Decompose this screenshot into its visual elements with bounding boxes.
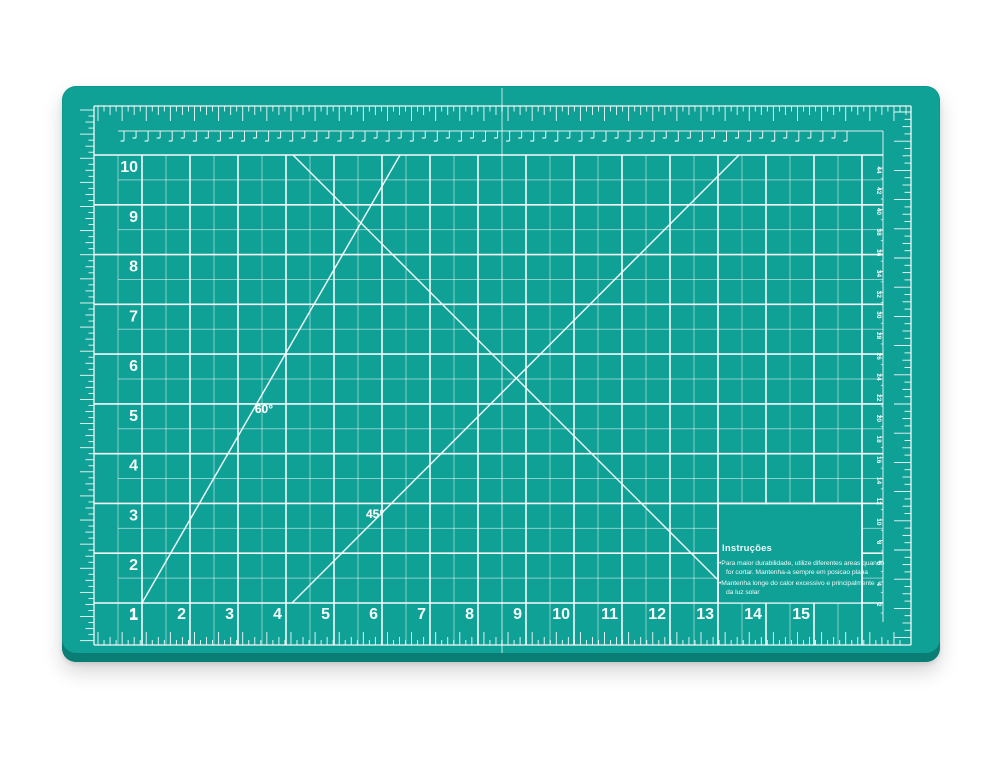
side-ruler-number: 16 <box>875 456 882 464</box>
side-ruler-number: 20 <box>875 415 882 423</box>
side-ruler-number: 18 <box>875 435 882 443</box>
side-ruler-number: 22 <box>875 394 882 402</box>
bottom-scale-number: 8 <box>465 606 474 623</box>
instructions-line: da luz solar <box>726 589 760 596</box>
side-ruler-number: 10 <box>875 518 882 526</box>
side-ruler-number: 24 <box>875 373 882 381</box>
bottom-scale-number: 11 <box>601 606 618 623</box>
left-scale-number: 10 <box>120 159 138 176</box>
side-ruler-number: 8 <box>875 541 882 545</box>
bottom-scale-number: 12 <box>648 606 666 623</box>
mat-markings: 4442403836343230282624222018161412108642… <box>0 0 1000 762</box>
side-ruler-number: 2 <box>875 603 882 607</box>
instructions-line: for cortar. Mantenha-a sempre em posicao… <box>726 569 868 576</box>
left-scale-number: 6 <box>129 358 138 375</box>
bottom-scale-number: 14 <box>744 606 762 623</box>
left-scale-number: 3 <box>129 507 138 524</box>
left-scale-number: 9 <box>129 209 138 226</box>
side-ruler-number: 36 <box>875 249 882 257</box>
bottom-scale-number: 4 <box>273 606 282 623</box>
side-ruler-number: 34 <box>875 270 882 278</box>
side-ruler-number: 40 <box>875 208 882 216</box>
left-scale-number: 4 <box>129 458 138 475</box>
side-ruler-number: 44 <box>875 166 882 174</box>
instructions-line: •Mantenha longe do calor excessivo e pri… <box>719 580 875 587</box>
bottom-scale-number: 7 <box>417 606 426 623</box>
bottom-scale-number: 2 <box>177 606 186 623</box>
angle-45-label: 45° <box>366 507 396 521</box>
angle-60-label: 60° <box>243 402 273 416</box>
diagonal-45deg-line <box>293 155 717 579</box>
bottom-scale-number: 10 <box>552 606 570 623</box>
instructions-title: Instruções <box>722 543 772 554</box>
bottom-scale-number: 15 <box>792 606 810 623</box>
bottom-scale-number: 13 <box>696 606 714 623</box>
side-ruler-number: 32 <box>875 291 882 299</box>
side-ruler-number: 26 <box>875 353 882 361</box>
left-scale-number: 1 <box>129 607 138 624</box>
side-ruler-number: 28 <box>875 332 882 340</box>
side-ruler-number: 38 <box>875 228 882 236</box>
side-ruler-number: 14 <box>875 477 882 485</box>
bottom-scale-number: 6 <box>369 606 378 623</box>
instructions-line: •Para maior durabilidade, utilize difere… <box>719 560 884 567</box>
bottom-scale-number: 3 <box>225 606 234 623</box>
product-photo: 4442403836343230282624222018161412108642… <box>0 0 1000 762</box>
left-scale-number: 8 <box>129 259 138 276</box>
left-scale-number: 7 <box>129 308 138 325</box>
left-scale-number: 2 <box>129 557 138 574</box>
bottom-scale-number: 5 <box>321 606 330 623</box>
side-ruler-number: 42 <box>875 187 882 195</box>
side-ruler-number: 30 <box>875 311 882 319</box>
left-scale-number: 5 <box>129 408 138 425</box>
side-ruler-number: 12 <box>875 498 882 506</box>
bottom-scale-number: 9 <box>513 606 522 623</box>
side-ruler-number: 4 <box>875 582 882 586</box>
